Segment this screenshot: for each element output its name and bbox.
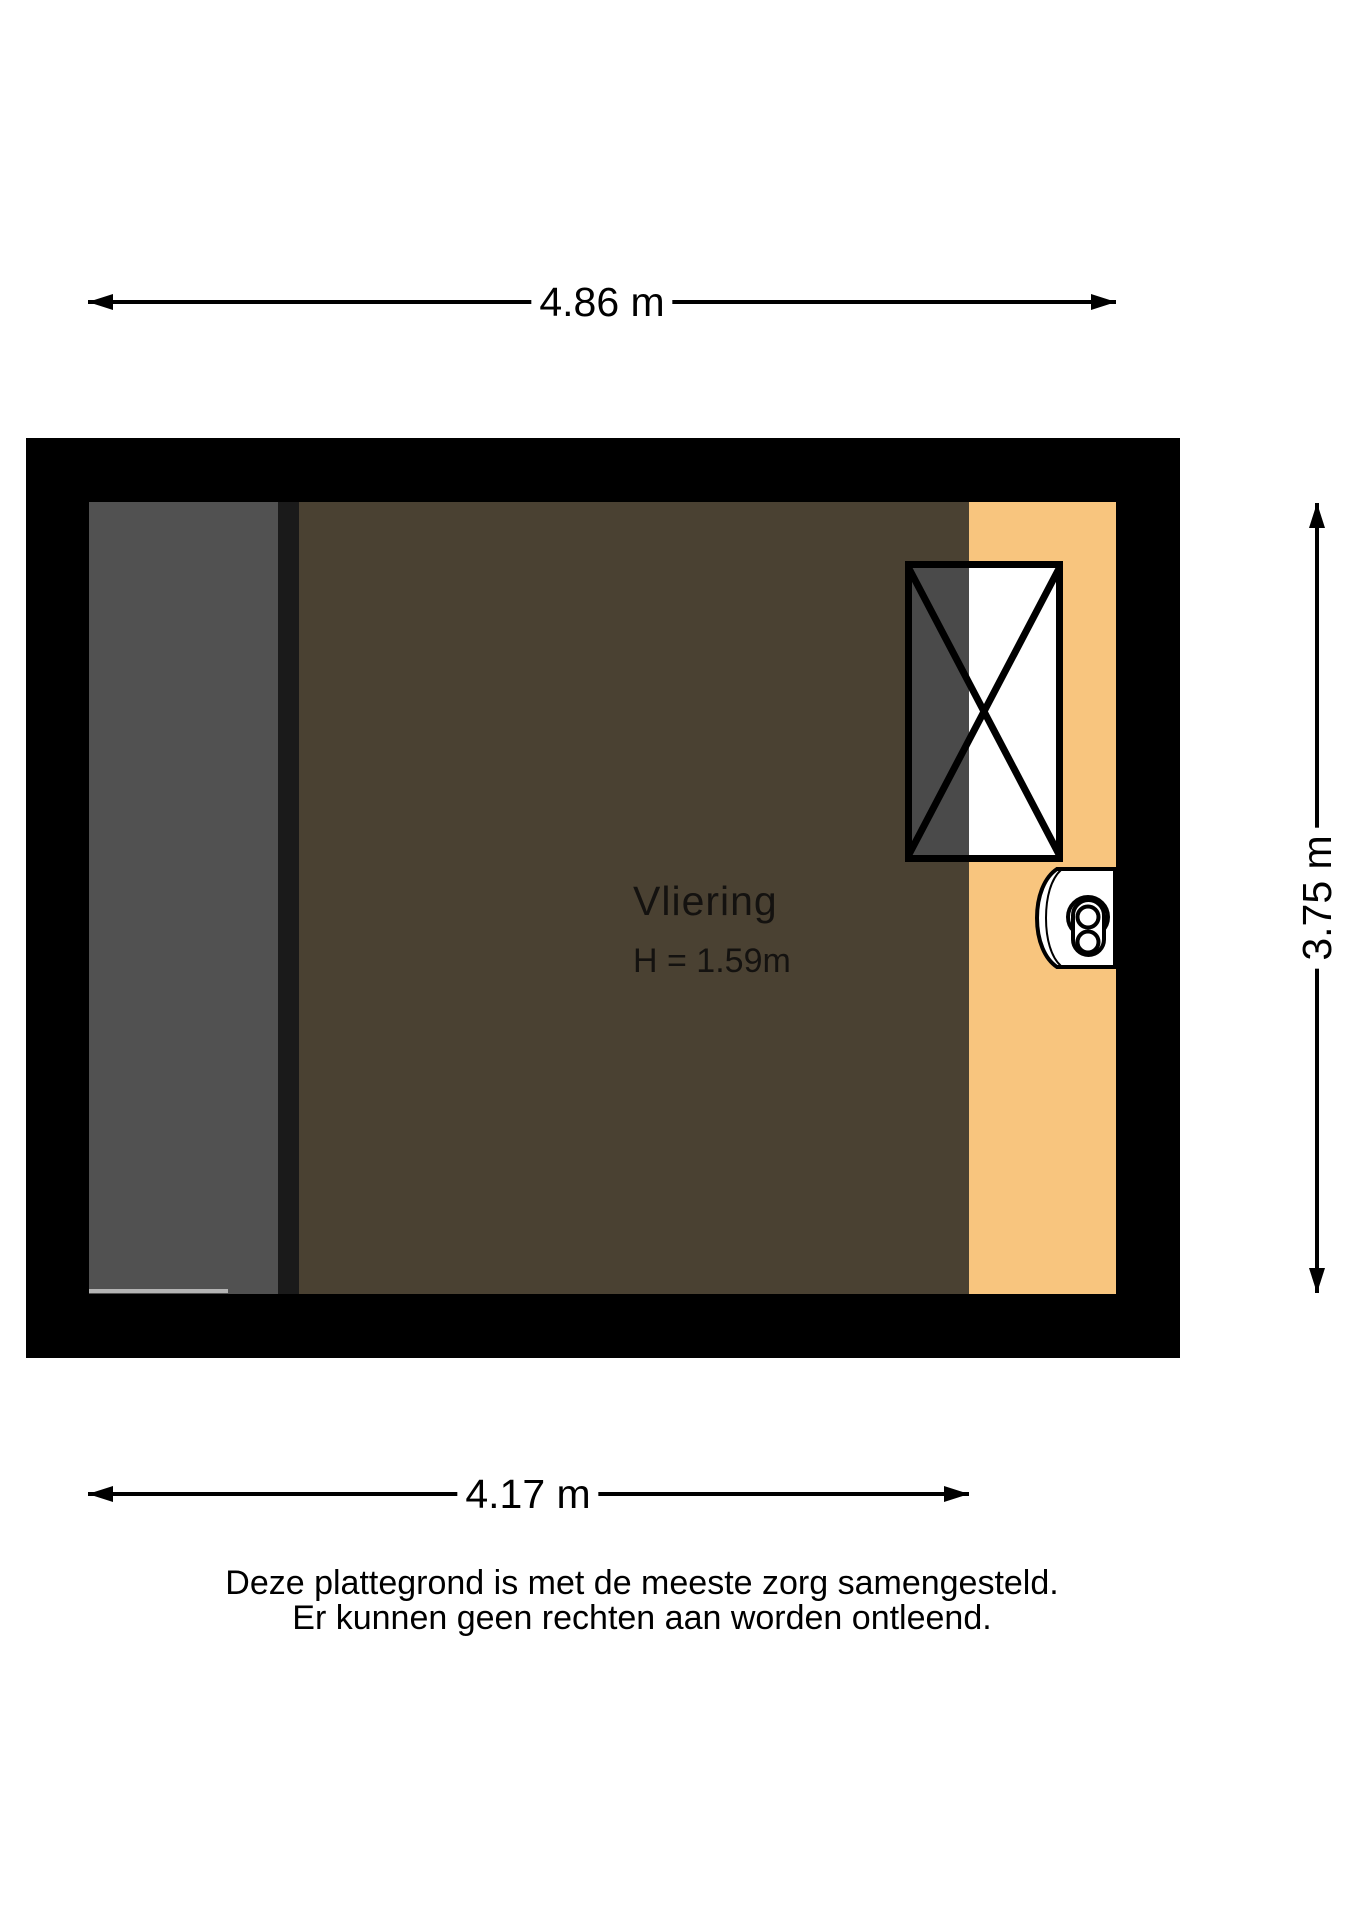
room-height-note: H = 1.59m [633,942,791,980]
dimension-label-bottom: 4.17 m [457,1470,598,1518]
disclaimer-text: Deze plattegrond is met de meeste zorg s… [182,1566,1102,1636]
stair-strip [89,502,278,1294]
arrowhead-up-icon [1309,503,1325,528]
roof-window-icon [905,561,1063,862]
arrowhead-right-icon [1091,294,1116,310]
floorplan-canvas: 4.86 m Vliering H = 1.59m 3.75 m 4.17 [0,0,1358,1920]
disclaimer-line-1: Deze plattegrond is met de meeste zorg s… [182,1566,1102,1601]
arrowhead-left-icon [88,1486,113,1502]
room-name-label: Vliering [633,879,778,923]
ventilation-unit-icon [1033,865,1119,971]
stair-edge-line [89,1289,228,1293]
dimension-label-right: 3.75 m [1293,827,1341,968]
disclaimer-line-2: Er kunnen geen rechten aan worden ontlee… [182,1601,1102,1636]
arrowhead-right-icon [944,1486,969,1502]
arrowhead-down-icon [1309,1268,1325,1293]
arrowhead-left-icon [88,294,113,310]
knee-wall-divider [278,502,299,1294]
dimension-label-top: 4.86 m [531,278,672,326]
